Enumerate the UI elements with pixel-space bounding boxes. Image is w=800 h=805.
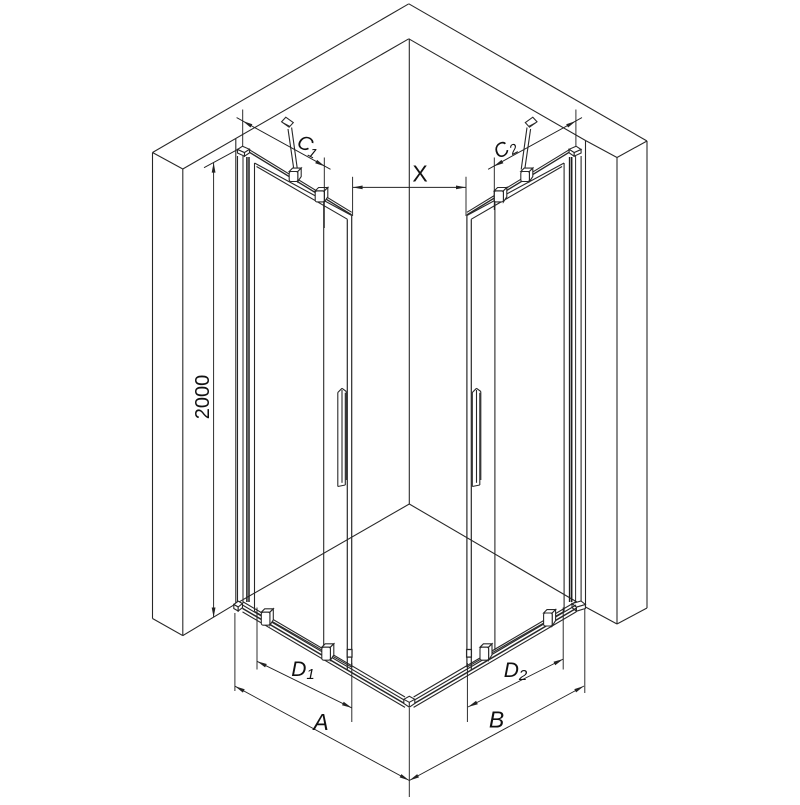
svg-text:2000: 2000 [192,375,214,420]
svg-text:A: A [311,709,328,735]
svg-text:X: X [412,161,427,187]
svg-text:B: B [489,707,504,733]
